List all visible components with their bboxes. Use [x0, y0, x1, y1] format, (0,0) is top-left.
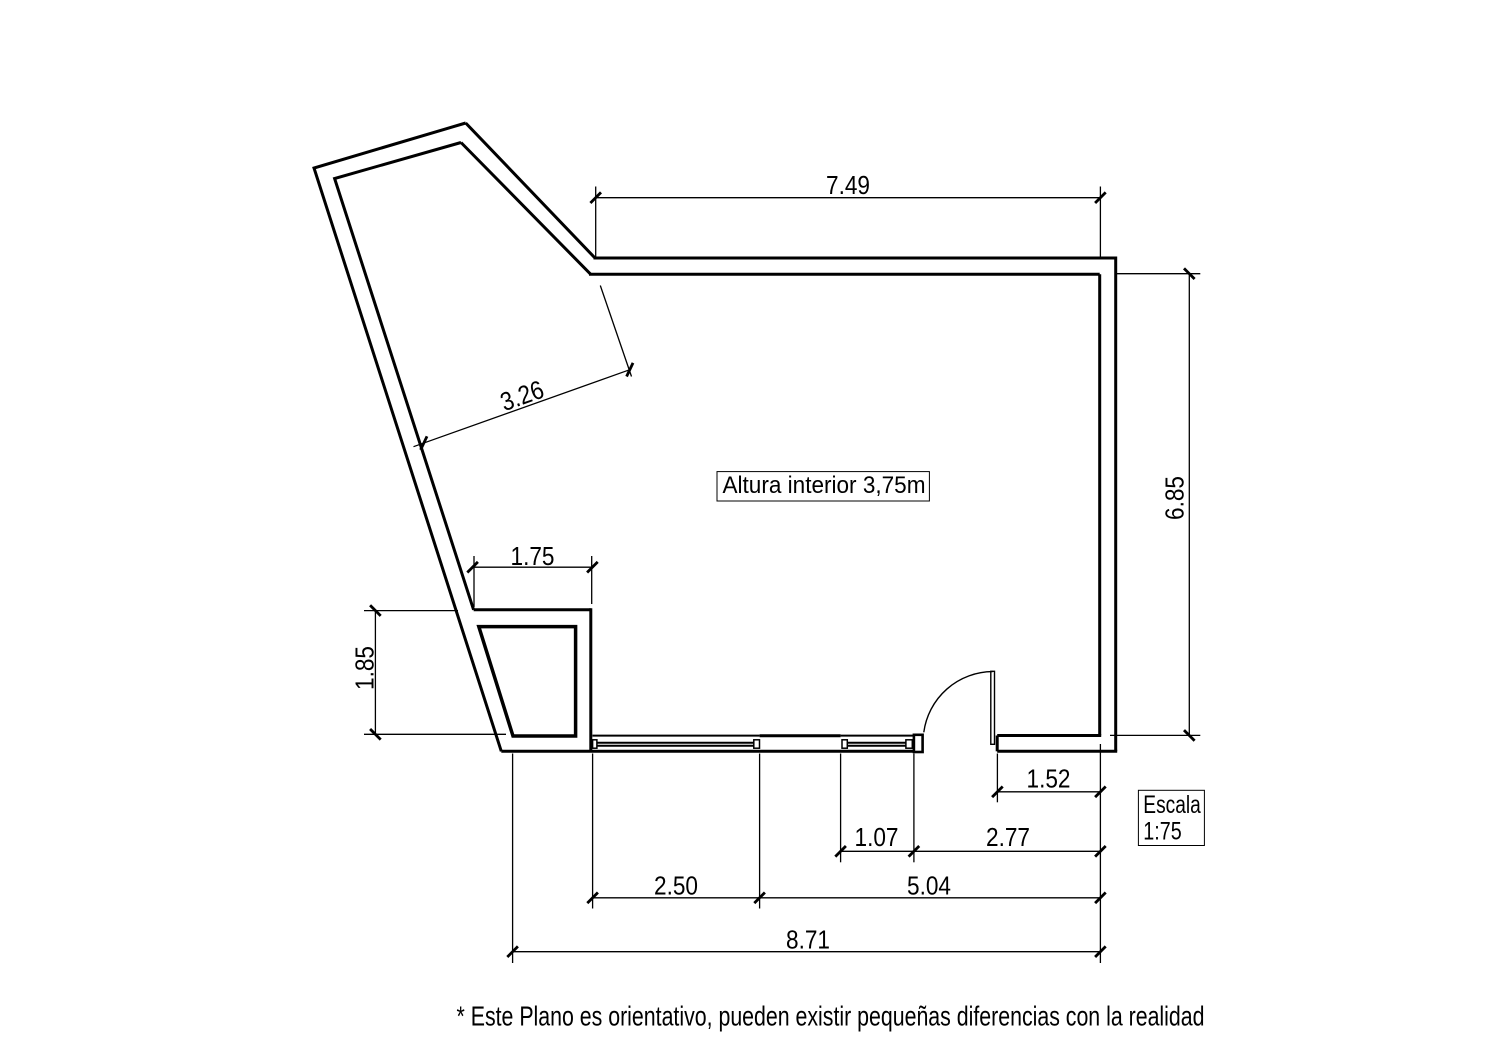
svg-text:8.71: 8.71	[786, 924, 830, 954]
svg-text:* Este Plano es orientativo, p: * Este Plano es orientativo, pueden exis…	[457, 1001, 1205, 1032]
svg-text:2.50: 2.50	[654, 871, 698, 901]
svg-text:2.77: 2.77	[986, 822, 1030, 852]
svg-text:1.52: 1.52	[1027, 763, 1071, 793]
svg-text:Escala: Escala	[1143, 791, 1201, 819]
svg-text:1.85: 1.85	[350, 646, 380, 690]
svg-text:7.49: 7.49	[826, 170, 870, 200]
svg-text:1.07: 1.07	[855, 822, 899, 852]
svg-text:1.75: 1.75	[511, 541, 555, 571]
svg-text:5.04: 5.04	[907, 871, 951, 901]
svg-text:Altura interior 3,75m: Altura interior 3,75m	[723, 472, 926, 499]
svg-text:6.85: 6.85	[1160, 476, 1190, 520]
svg-text:1:75: 1:75	[1143, 818, 1182, 846]
